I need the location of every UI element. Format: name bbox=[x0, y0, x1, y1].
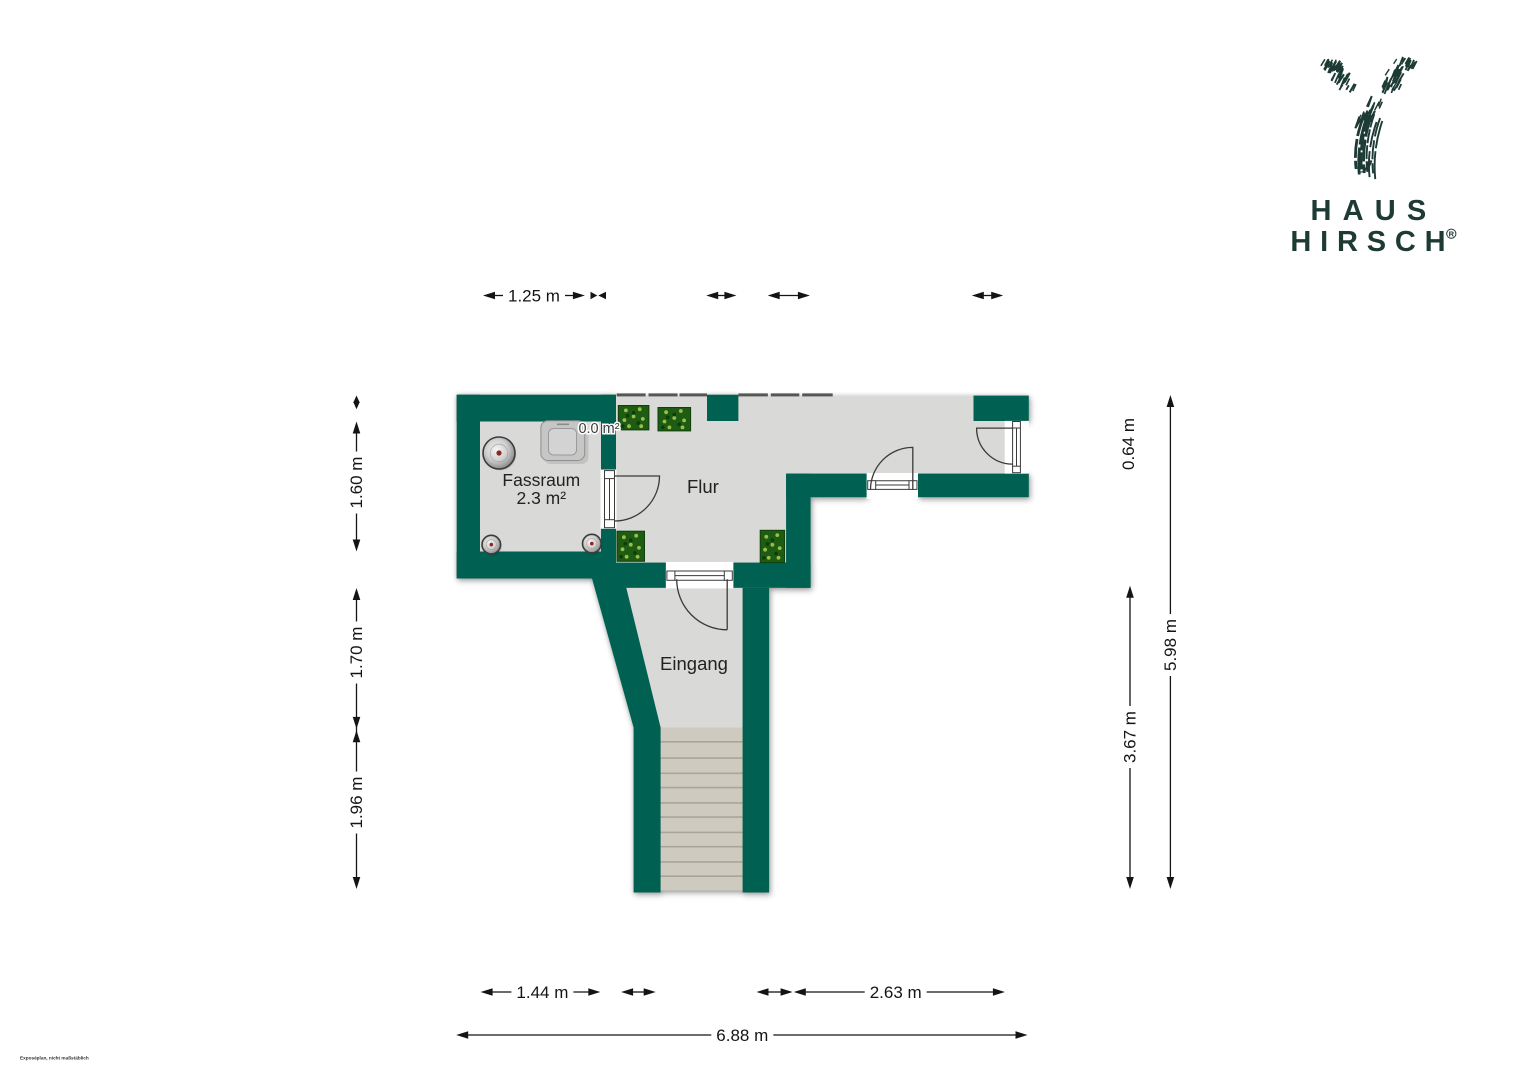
svg-text:1.60 m: 1.60 m bbox=[347, 457, 366, 509]
svg-text:HIRSCH: HIRSCH bbox=[1290, 226, 1454, 258]
svg-text:2.3 m²: 2.3 m² bbox=[516, 488, 566, 508]
svg-text:0.0 m²: 0.0 m² bbox=[578, 421, 619, 437]
svg-text:0.64 m: 0.64 m bbox=[1119, 418, 1138, 470]
svg-text:1.96 m: 1.96 m bbox=[347, 777, 366, 829]
svg-text:5.98 m: 5.98 m bbox=[1161, 619, 1180, 671]
svg-text:1.70 m: 1.70 m bbox=[347, 627, 366, 679]
svg-text:2.63 m: 2.63 m bbox=[870, 983, 922, 1002]
svg-text:Flur: Flur bbox=[687, 476, 719, 497]
svg-text:HAUS: HAUS bbox=[1311, 195, 1438, 227]
svg-text:Eingang: Eingang bbox=[660, 653, 728, 674]
svg-text:Fassraum: Fassraum bbox=[502, 470, 580, 490]
svg-text:Exposéplan, nicht maßstäblich: Exposéplan, nicht maßstäblich bbox=[20, 1056, 89, 1061]
svg-text:R: R bbox=[1449, 229, 1455, 238]
svg-text:1.44 m: 1.44 m bbox=[516, 983, 568, 1002]
svg-text:3.67 m: 3.67 m bbox=[1121, 711, 1140, 763]
svg-text:1.25 m: 1.25 m bbox=[508, 287, 560, 306]
svg-text:6.88 m: 6.88 m bbox=[716, 1026, 768, 1045]
